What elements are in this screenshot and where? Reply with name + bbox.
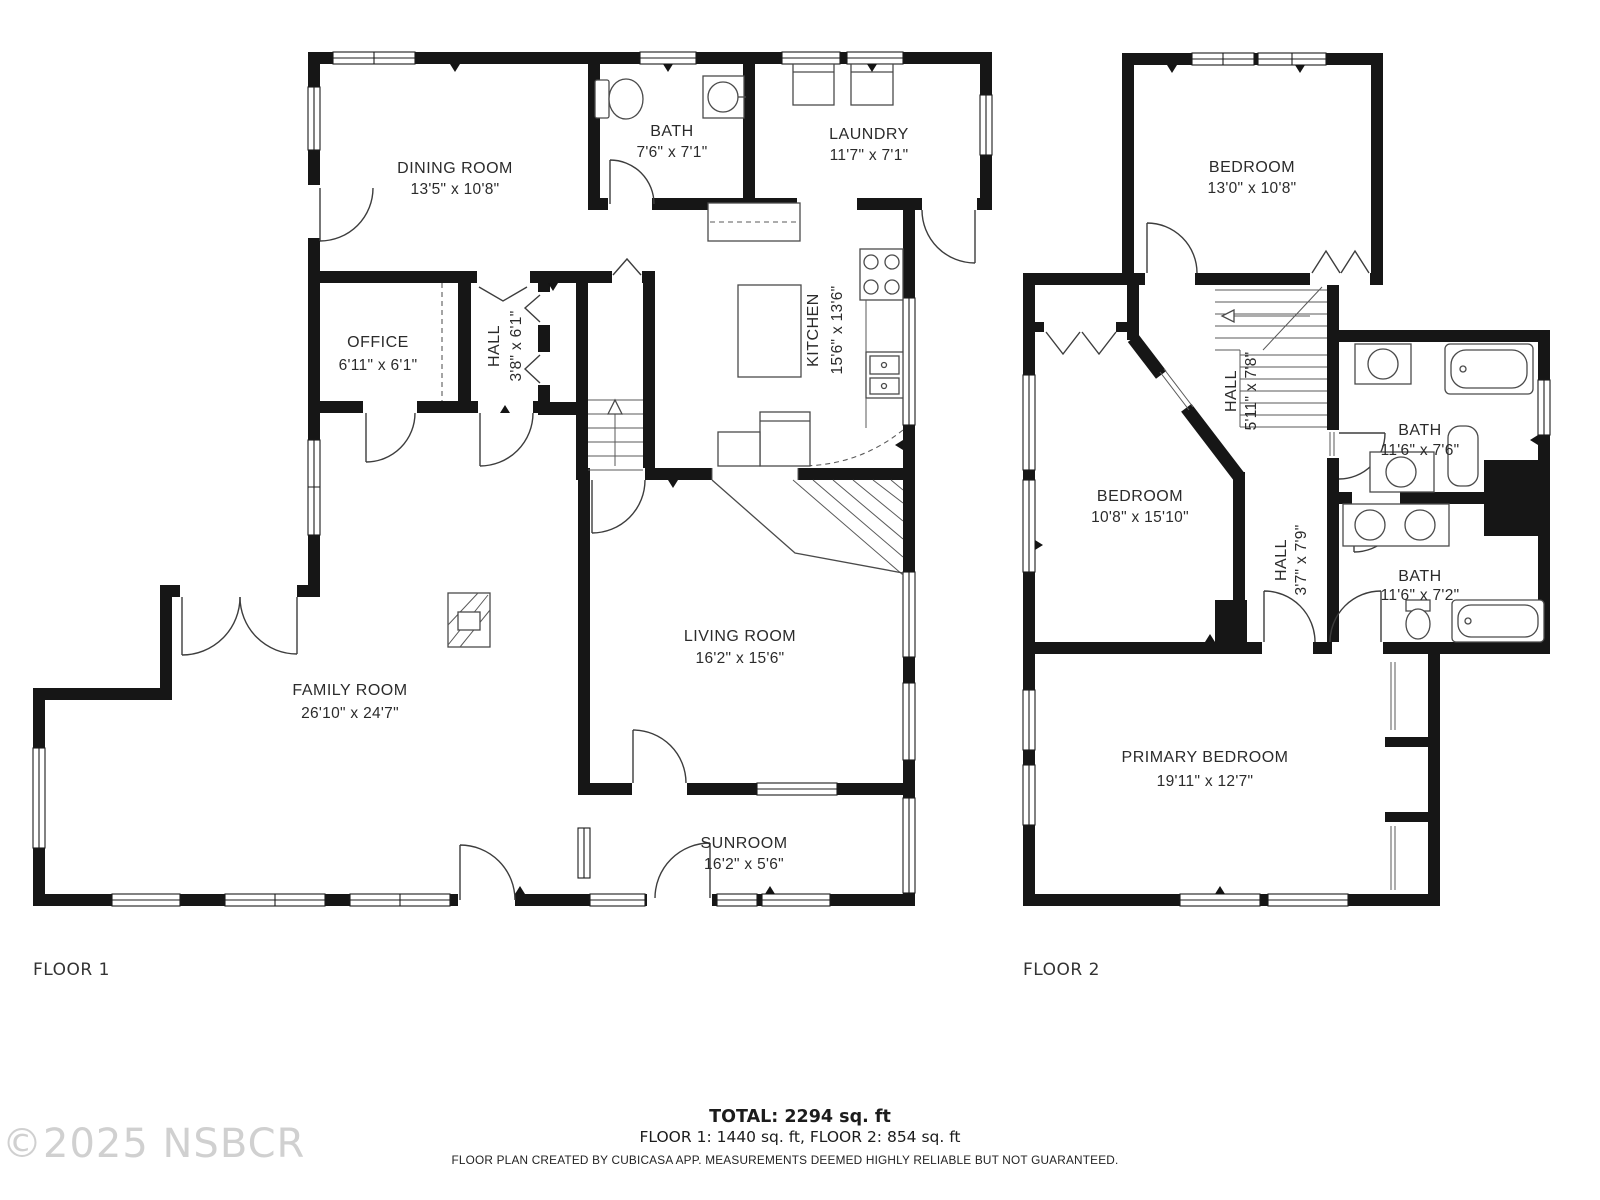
- bath2-vanity-icon: [1343, 504, 1449, 546]
- room-dims-living: 16'2" x 15'6": [696, 650, 785, 667]
- room-label-family: FAMILY ROOM: [292, 682, 407, 699]
- room-label-primary: PRIMARY BEDROOM: [1122, 749, 1289, 766]
- bath1-sink-icon: [1355, 344, 1411, 384]
- room-dims-primary: 19'11" x 12'7": [1157, 773, 1254, 790]
- floor1-labels: DINING ROOM 13'5" x 10'8" BATH 7'6" x 7'…: [292, 123, 908, 873]
- room-dims-family: 26'10" x 24'7": [301, 705, 399, 722]
- room-label-hall1: HALL: [1223, 370, 1240, 412]
- fridge-icon: [760, 412, 810, 466]
- floor1-stairs-up-hatch: [712, 480, 903, 575]
- room-label-hall-f1: HALL: [486, 325, 503, 367]
- room-dims-bath: 7'6" x 7'1": [636, 144, 707, 161]
- watermark: ©2025 NSBCR: [2, 1121, 305, 1167]
- floor-plan-image: DINING ROOM 13'5" x 10'8" BATH 7'6" x 7'…: [0, 0, 1600, 1200]
- room-dims-hall1: 5'11" x 7'8": [1243, 352, 1260, 431]
- floor1-caption: FLOOR 1: [33, 960, 110, 980]
- kitchen-counter: [718, 432, 760, 466]
- washer-icon: [793, 64, 834, 105]
- pantry-cabinet: [708, 203, 800, 241]
- room-label-sunroom: SUNROOM: [700, 835, 787, 852]
- bath2-toilet-icon: [1406, 600, 1430, 639]
- floor1-plan: DINING ROOM 13'5" x 10'8" BATH 7'6" x 7'…: [33, 52, 992, 906]
- room-dims-hall-f1: 3'8" x 6'1": [508, 310, 525, 381]
- room-dims-office: 6'11" x 6'1": [339, 357, 418, 374]
- footer-disclaimer: FLOOR PLAN CREATED BY CUBICASA APP. MEAS…: [452, 1153, 1119, 1167]
- floor1-stairs-down: [588, 400, 643, 470]
- toilet-icon: [595, 79, 643, 119]
- room-label-bath: BATH: [650, 123, 693, 140]
- floor2-doors: [1046, 223, 1402, 642]
- room-label-bedroom1: BEDROOM: [1209, 159, 1295, 176]
- room-label-bath1: BATH: [1398, 422, 1441, 439]
- footer: TOTAL: 2294 sq. ft FLOOR 1: 1440 sq. ft,…: [452, 1107, 1119, 1167]
- room-dims-hall2: 3'7" x 7'9": [1293, 524, 1310, 595]
- fireplace-icon: [448, 593, 490, 647]
- room-dims-bedroom1: 13'0" x 10'8": [1208, 180, 1297, 197]
- room-dims-laundry: 11'7" x 7'1": [830, 147, 909, 164]
- room-label-bath2: BATH: [1398, 568, 1441, 585]
- room-label-bedroom2: BEDROOM: [1097, 488, 1183, 505]
- room-dims-bedroom2: 10'8" x 15'10": [1091, 509, 1189, 526]
- floor-plan-page: DINING ROOM 13'5" x 10'8" BATH 7'6" x 7'…: [0, 0, 1600, 1200]
- floor2-openings: [1044, 273, 1401, 892]
- room-label-dining: DINING ROOM: [397, 160, 513, 177]
- kitchen-sink-icon: [866, 352, 903, 398]
- footer-total: TOTAL: 2294 sq. ft: [709, 1107, 891, 1127]
- room-label-kitchen: KITCHEN: [805, 293, 822, 367]
- room-label-office: OFFICE: [347, 334, 409, 351]
- bath1-tub-icon: [1445, 344, 1533, 394]
- room-dims-bath2: 11'6" x 7'2": [1381, 587, 1460, 604]
- floor2-plan: BEDROOM 13'0" x 10'8" HALL 5'11" x 7'8" …: [1023, 53, 1550, 906]
- stove-icon: [860, 249, 903, 300]
- room-label-hall2: HALL: [1273, 539, 1290, 581]
- footer-floors: FLOOR 1: 1440 sq. ft, FLOOR 2: 854 sq. f…: [639, 1128, 960, 1146]
- room-label-living: LIVING ROOM: [684, 628, 796, 645]
- bath2-tub-icon: [1452, 600, 1544, 642]
- floor1-walls: [33, 52, 992, 906]
- bath-sink-icon: [703, 76, 746, 118]
- floor2-caption: FLOOR 2: [1023, 960, 1100, 980]
- kitchen-island: [738, 285, 801, 377]
- room-label-laundry: LAUNDRY: [829, 126, 909, 143]
- room-dims-dining: 13'5" x 10'8": [411, 181, 500, 198]
- room-dims-sunroom: 16'2" x 5'6": [704, 856, 784, 873]
- room-dims-bath1: 11'6" x 7'6": [1381, 442, 1460, 459]
- room-dims-kitchen: 15'6" x 13'6": [829, 286, 846, 375]
